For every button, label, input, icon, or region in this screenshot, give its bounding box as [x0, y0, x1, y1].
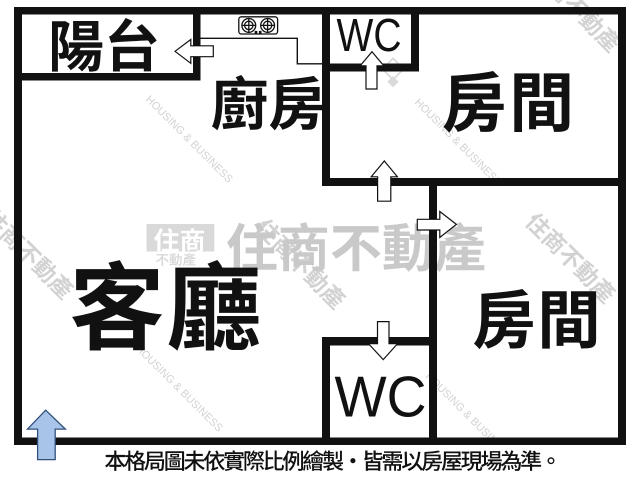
svg-text:WC: WC [337, 9, 402, 61]
svg-text:WC: WC [335, 365, 427, 429]
